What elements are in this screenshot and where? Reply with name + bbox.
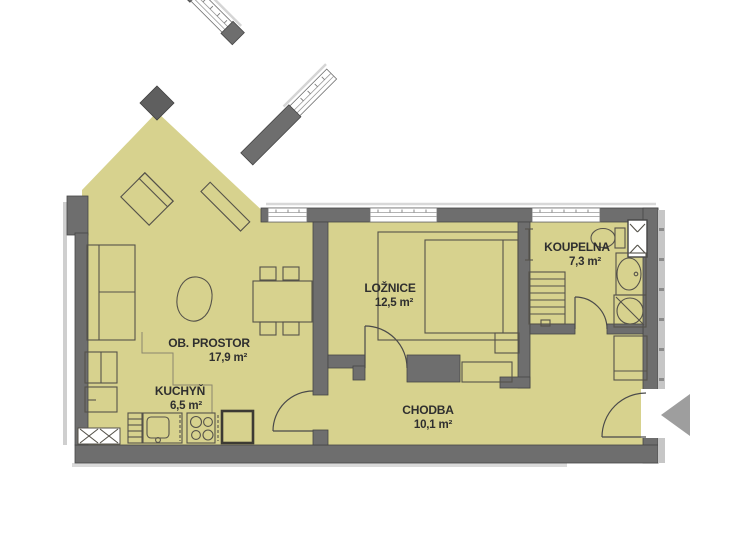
label-hallway: CHODBA	[402, 403, 454, 417]
wall-bedroom-south-right	[407, 355, 460, 382]
label-bathroom: KOUPELNA	[544, 240, 610, 254]
wall-west-lower	[75, 233, 88, 445]
floor-plan: OB. PROSTOR 17,9 m² KUCHYŇ 6,5 m² LOŽNIC…	[0, 0, 750, 560]
wall-bathroom-south-right	[607, 324, 643, 334]
area-hallway: 10,1 m²	[414, 419, 453, 431]
window-living	[268, 208, 307, 222]
area-bedroom: 12,5 m²	[375, 297, 414, 309]
wall-south	[75, 445, 658, 463]
radiator	[78, 428, 120, 444]
area-bathroom: 7,3 m²	[569, 256, 601, 268]
window-bathroom	[532, 208, 600, 222]
wall-bathroom-west	[518, 222, 530, 388]
wall-west-upper	[67, 196, 88, 235]
area-kitchen: 6,5 m²	[170, 400, 202, 412]
window-bedroom	[370, 208, 437, 222]
vent-shaft	[628, 220, 647, 257]
label-kitchen: KUCHYŇ	[155, 383, 205, 398]
wall-kitchen-stub	[313, 430, 328, 445]
wall-bathroom-south-left	[530, 324, 575, 334]
label-living-room: OB. PROSTOR	[168, 336, 250, 350]
wall-bedroom-jamb	[353, 366, 365, 380]
area-living-room: 17,9 m²	[209, 352, 248, 364]
label-bedroom: LOŽNICE	[364, 280, 415, 295]
wall-living-bedroom	[313, 222, 328, 395]
